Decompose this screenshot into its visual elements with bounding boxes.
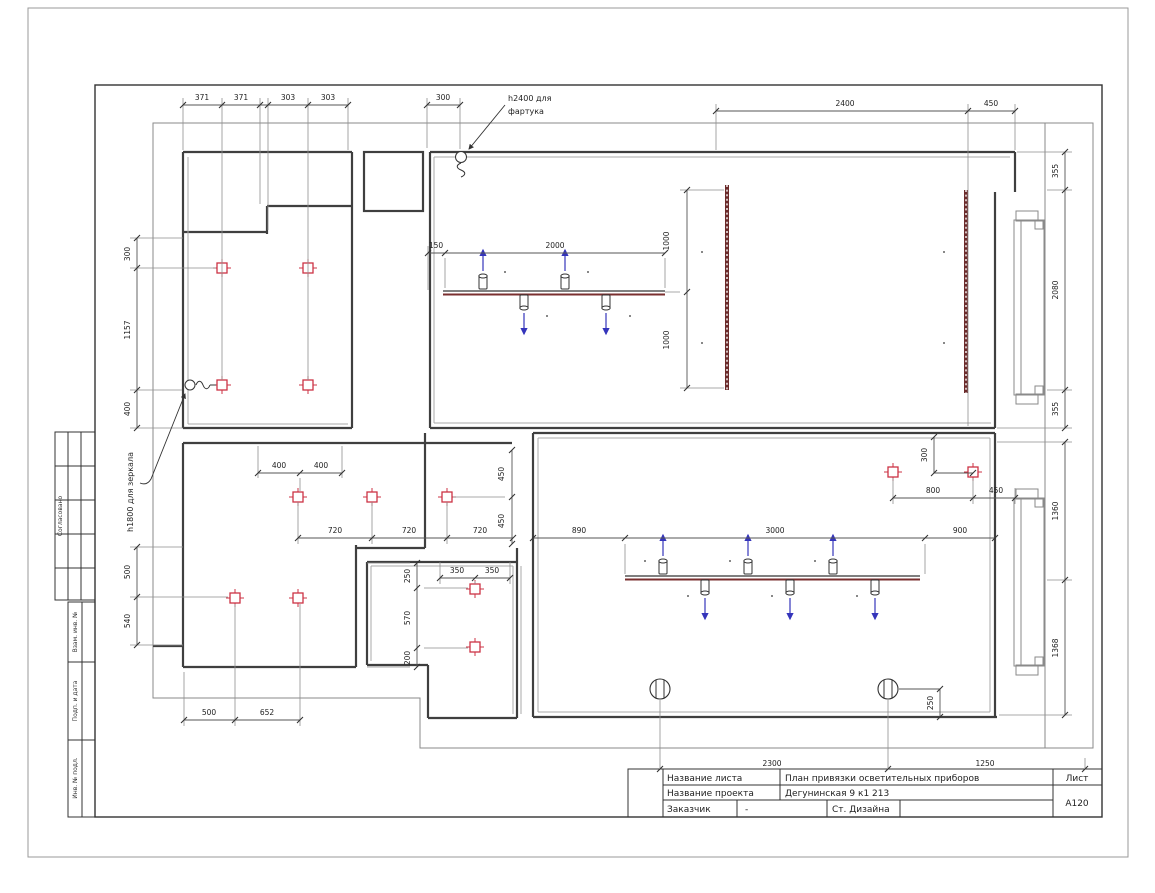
dim-label: 2300	[762, 759, 781, 768]
dim-label: 355	[1051, 402, 1060, 417]
apron-leader-line	[469, 105, 505, 149]
walls-path	[153, 152, 1015, 718]
dim-label: 720	[402, 526, 417, 535]
track-spot-down	[602, 295, 610, 334]
ceiling-dots	[504, 251, 945, 597]
dim-label: 1368	[1051, 638, 1060, 657]
stamp-label-inv: Инв. № подл.	[72, 757, 79, 798]
spot-fixture	[466, 638, 484, 656]
title-row2-label: Название проекта	[667, 789, 754, 799]
title-row2-value: Дегунинская 9 к1 213	[785, 789, 889, 799]
track-spot-down	[520, 295, 528, 334]
track-spot-up	[744, 535, 752, 574]
title-row1-label: Название листа	[667, 774, 742, 784]
plan-outer-contour	[153, 123, 1093, 748]
window-bottom-right	[1014, 489, 1044, 675]
annotation-apron-line1: h2400 для	[508, 94, 552, 103]
title-row3-value: -	[745, 805, 748, 815]
dim-label: 150	[429, 241, 444, 250]
sheet-label: Лист	[1066, 774, 1089, 784]
dim-label: 3000	[765, 526, 784, 535]
title-block: Название листа План привязки осветительн…	[628, 769, 1102, 817]
track-spot-up	[479, 250, 487, 289]
dim-label: 300	[436, 93, 451, 102]
dim-label: 890	[572, 526, 587, 535]
dim-label: 371	[234, 93, 249, 102]
window-top-right	[1014, 211, 1044, 404]
dim-label: 350	[450, 566, 465, 575]
drawing-frame	[95, 85, 1102, 817]
walls-inner-lines	[188, 157, 1010, 714]
dim-label: 350	[485, 566, 500, 575]
dim-label: 500	[123, 565, 132, 580]
dim-label: 720	[473, 526, 488, 535]
dimension-ticks	[134, 102, 1088, 772]
stamp-label-vzam: Взам. инв. №	[72, 612, 79, 653]
dim-label: 900	[953, 526, 968, 535]
pendant-lamp	[878, 679, 898, 699]
dim-label: 400	[123, 402, 132, 417]
dim-label: 450	[989, 486, 1004, 495]
pendant-lamp	[650, 679, 670, 699]
spot-fixtures	[213, 259, 982, 656]
track-light-bottom	[625, 535, 920, 619]
spot-fixture	[289, 589, 307, 607]
track-spot-down	[786, 580, 794, 619]
dim-label: 2000	[545, 241, 564, 250]
dim-label: 500	[202, 708, 217, 717]
dim-label: 250	[403, 569, 412, 584]
mirror-leader-line	[140, 394, 185, 484]
dim-label: 800	[926, 486, 941, 495]
title-row3-value2: Ст. Дизайна	[832, 805, 890, 815]
annotation-apron-line2: фартука	[508, 107, 544, 116]
dimension-lines	[137, 105, 1088, 769]
dim-label: 2080	[1051, 280, 1060, 299]
dim-label: 1360	[1051, 501, 1060, 520]
floor-plan-canvas: Согласовано Взам. инв. № Подп. и дата Ин…	[0, 0, 1155, 893]
track-spot-up	[561, 250, 569, 289]
dim-label: 200	[403, 651, 412, 666]
annotation-mirror: h1800 для зеркала	[126, 394, 185, 532]
track-light-top	[443, 250, 665, 334]
outlet-symbol-left	[185, 380, 216, 390]
title-row1-value: План привязки осветительных приборов	[785, 774, 979, 784]
dim-label: 300	[920, 448, 929, 463]
dim-label: 300	[123, 247, 132, 262]
dim-label: 303	[281, 93, 296, 102]
dim-label: 400	[314, 461, 329, 470]
dim-label: 371	[195, 93, 210, 102]
dim-label: 652	[260, 708, 275, 717]
stamp-column: Согласовано Взам. инв. № Подп. и дата Ин…	[55, 432, 95, 817]
dim-label: 1250	[975, 759, 994, 768]
stamp-label-agreed: Согласовано	[57, 496, 64, 537]
dim-label: 303	[321, 93, 336, 102]
annotation-apron: h2400 для фартука	[469, 94, 552, 149]
track-spot-down	[701, 580, 709, 619]
dim-label: 720	[328, 526, 343, 535]
dim-label: 1157	[123, 320, 132, 339]
sheet-number: А120	[1065, 799, 1089, 809]
dim-label: 450	[497, 467, 506, 482]
outlet-symbol-apron	[456, 152, 467, 178]
dim-label: 2400	[835, 99, 854, 108]
dim-label: 450	[984, 99, 999, 108]
dim-label: 450	[497, 514, 506, 529]
drawing-sheet: Согласовано Взам. инв. № Подп. и дата Ин…	[0, 0, 1155, 893]
dim-label: 1000	[662, 231, 671, 250]
track-spot-up	[659, 535, 667, 574]
title-row3-label: Заказчик	[667, 805, 711, 815]
dim-label: 570	[403, 611, 412, 626]
shaft-box	[364, 152, 423, 211]
track-spot-up	[829, 535, 837, 574]
dim-label: 400	[272, 461, 287, 470]
dim-label: 1000	[662, 330, 671, 349]
stamp-label-podp: Подп. и дата	[72, 680, 79, 721]
track-spot-down	[871, 580, 879, 619]
dim-label: 355	[1051, 164, 1060, 179]
dim-label: 250	[926, 696, 935, 711]
annotation-mirror-text: h1800 для зеркала	[126, 452, 135, 532]
dim-label: 540	[123, 614, 132, 629]
